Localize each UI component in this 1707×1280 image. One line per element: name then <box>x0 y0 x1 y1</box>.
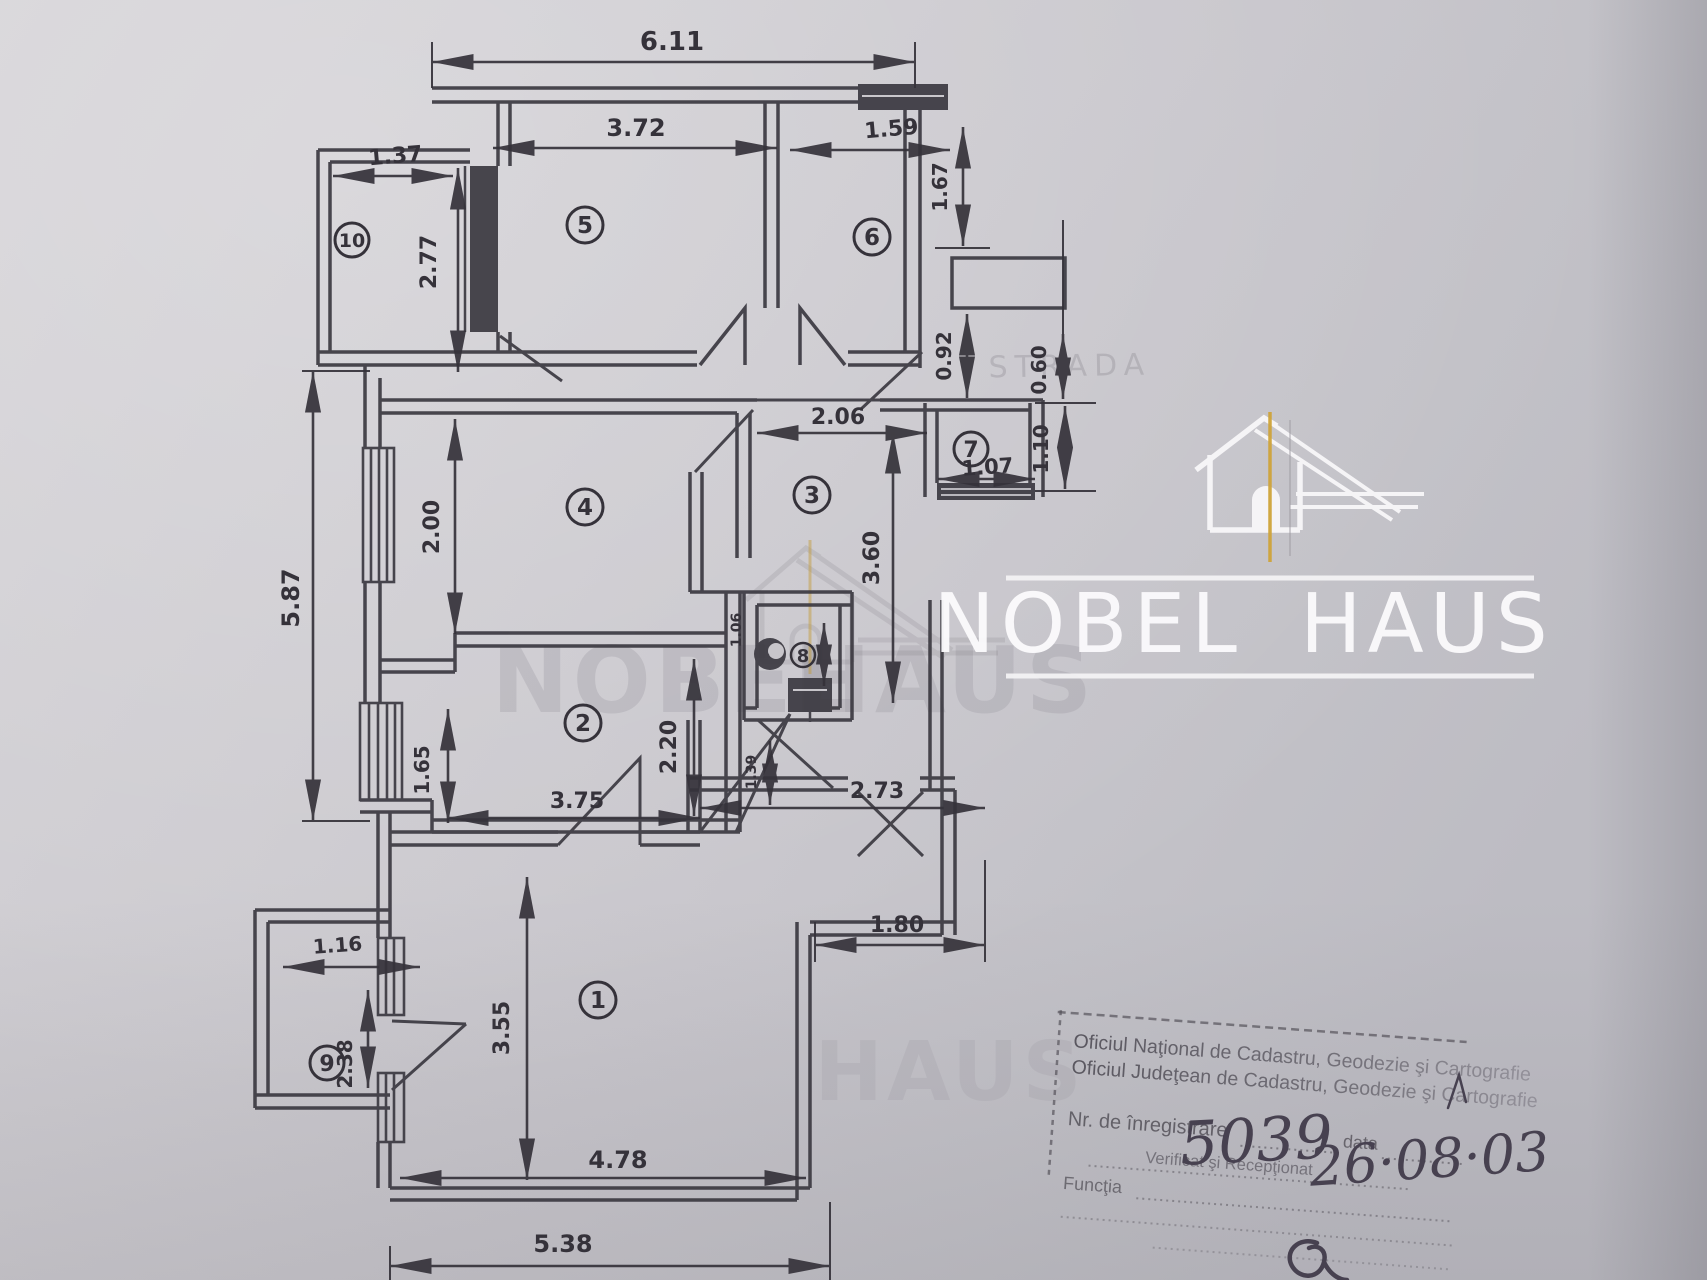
svg-text:3: 3 <box>804 483 820 509</box>
window-sill-room7 <box>937 483 1035 500</box>
dim-label: 1.39 <box>744 755 760 790</box>
svg-text:7: 7 <box>963 438 978 463</box>
dim-label: 6.11 <box>640 27 704 57</box>
dim-label: 2.20 <box>657 720 682 774</box>
dim-label: 1.10 <box>1029 424 1053 473</box>
dim-label: 1.06 <box>729 613 745 648</box>
glazed-door-panel <box>470 166 498 332</box>
svg-text:4: 4 <box>577 495 593 521</box>
dim-label: 2.77 <box>417 235 442 289</box>
dim-label: 3.60 <box>860 531 885 585</box>
faint-brand-bottom: HAUS <box>814 1025 1085 1120</box>
svg-text:6: 6 <box>864 225 880 251</box>
dim-label: 1.67 <box>928 162 952 211</box>
dim-label: 1.37 <box>367 142 423 172</box>
brand-word-haus: HAUS <box>1300 577 1554 672</box>
dim-label: 0.60 <box>1027 345 1051 394</box>
sink-icon <box>788 678 832 712</box>
dim-label: 3.55 <box>490 1001 515 1055</box>
dim-label: 2.06 <box>811 405 865 430</box>
svg-text:5: 5 <box>577 213 593 239</box>
dim-label: 1.59 <box>863 115 919 145</box>
dim-label: 1.80 <box>870 913 924 938</box>
dim-label: 1.16 <box>312 931 363 958</box>
dim-label: 2.00 <box>420 500 445 554</box>
dim-label: 2.73 <box>850 779 904 804</box>
dim-label: 3.72 <box>606 114 665 142</box>
brand-word-nobel: NOBEL <box>933 577 1243 672</box>
svg-text:10: 10 <box>339 230 365 252</box>
faint-street-text: STRADA <box>988 348 1151 386</box>
dim-label: 0.92 <box>932 331 956 380</box>
floor-plan-scan: STRADA NOBEL HAUS HAUS <box>0 0 1707 1280</box>
scanned-floor-plan-page: STRADA NOBEL HAUS HAUS <box>0 0 1707 1280</box>
svg-text:2: 2 <box>575 711 591 737</box>
svg-text:9: 9 <box>319 1052 334 1077</box>
dim-label: 1.65 <box>410 745 434 794</box>
dim-label: 4.78 <box>588 1146 647 1174</box>
svg-text:1: 1 <box>590 988 606 1014</box>
dim-label: 3.75 <box>550 789 604 814</box>
dim-label: 5.87 <box>277 568 305 627</box>
svg-text:8: 8 <box>797 646 810 667</box>
dim-label: 5.38 <box>533 1230 592 1258</box>
